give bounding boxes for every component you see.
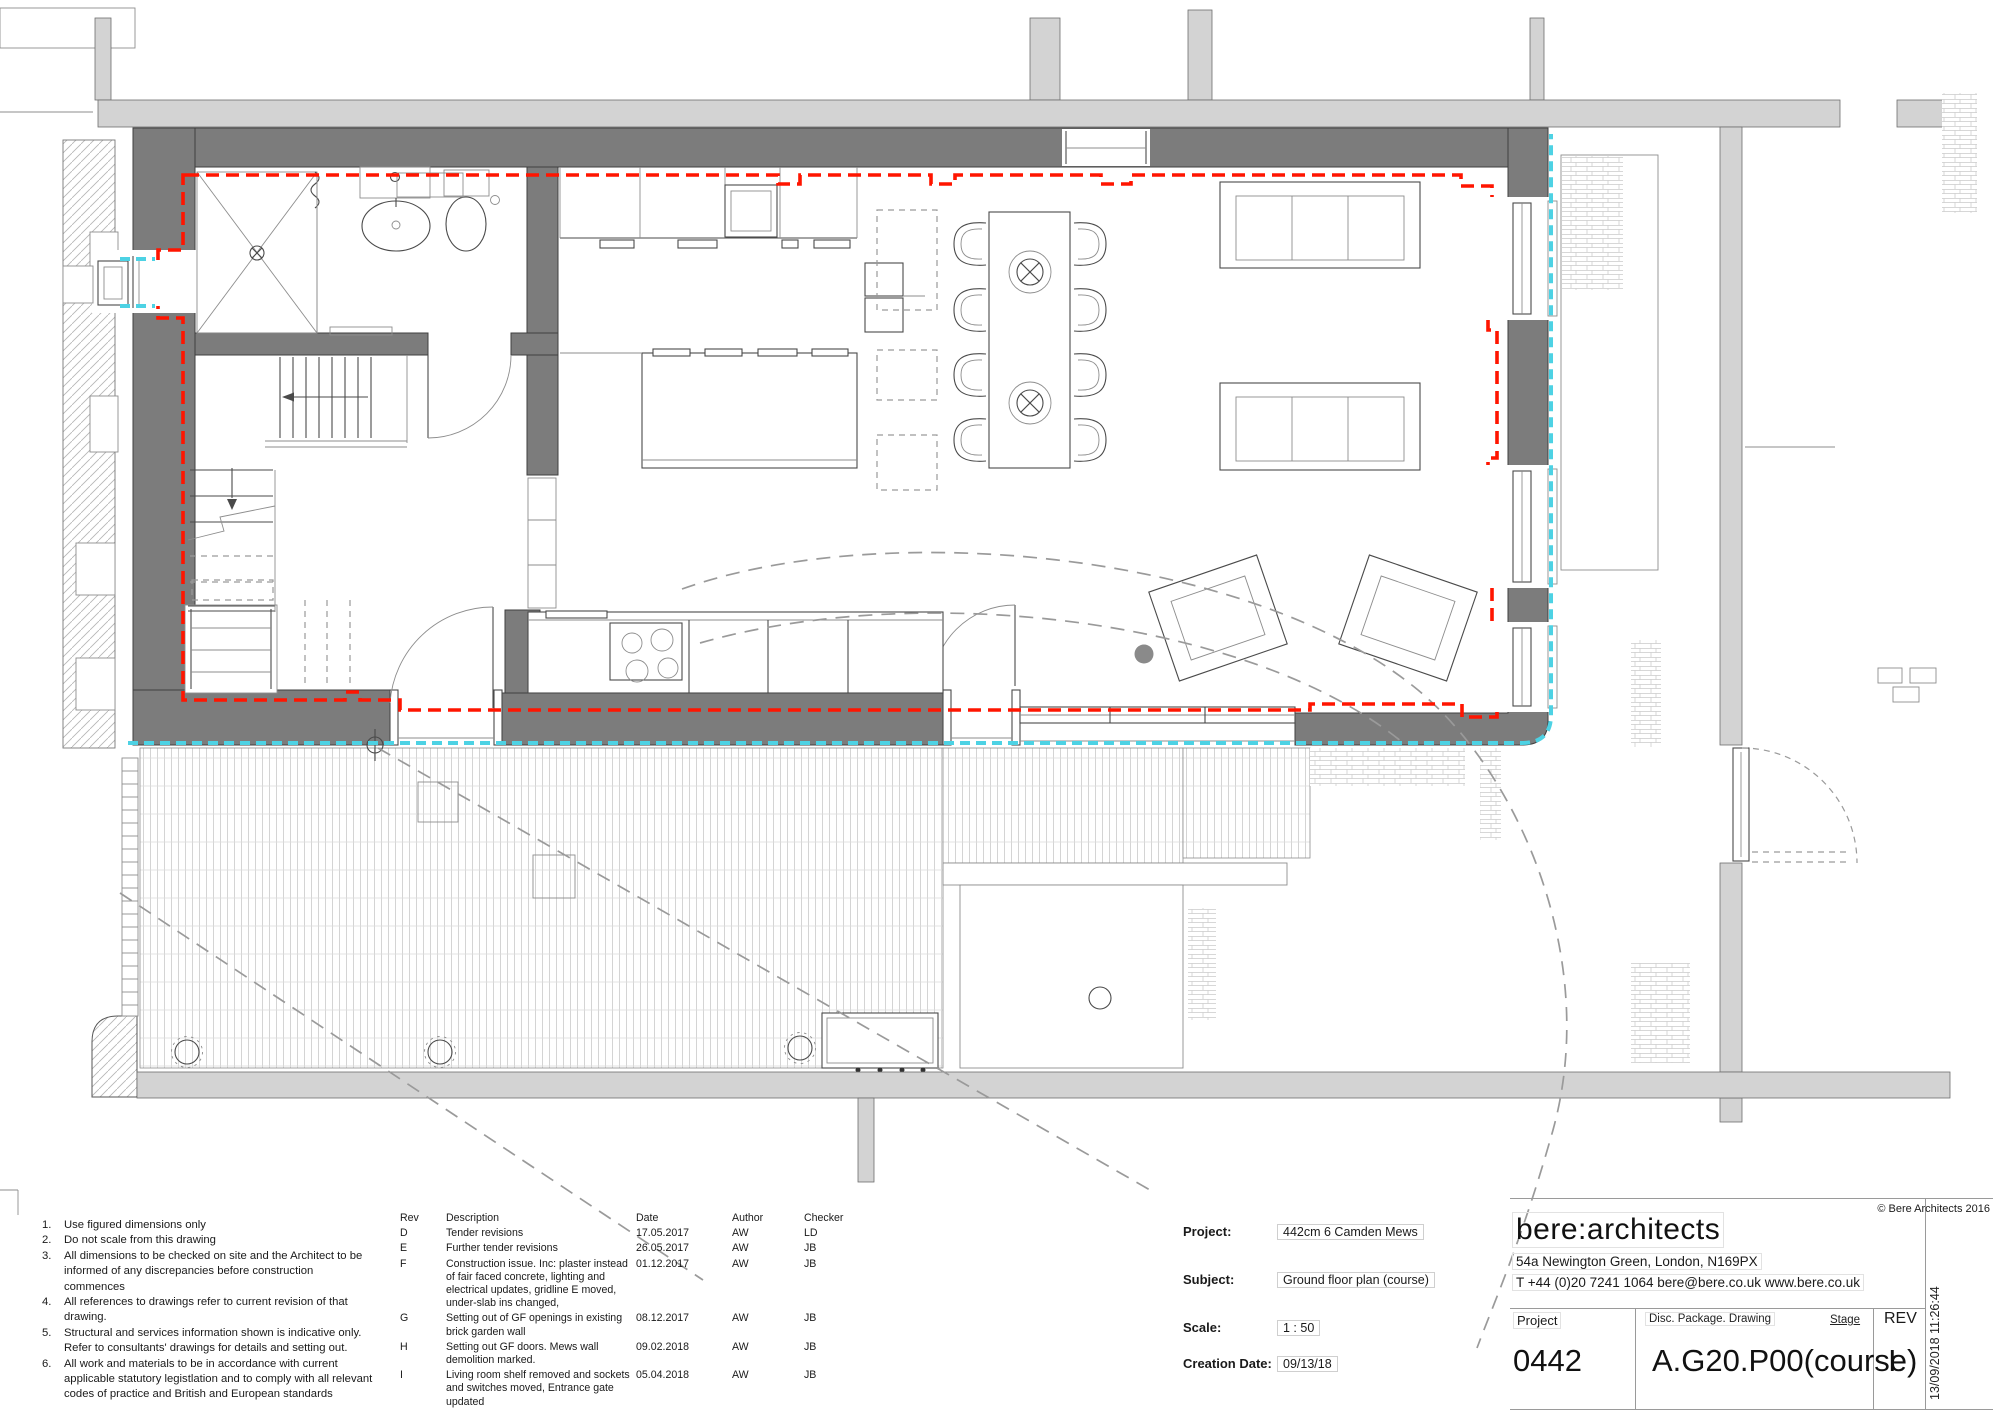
revision-rev: I: [400, 1369, 446, 1411]
kitchen-trolley: [865, 263, 925, 332]
scale-label: Scale:: [1183, 1320, 1221, 1335]
note-item: 2.Do not scale from this drawing: [42, 1233, 382, 1248]
note-item: 5.Structural and services information sh…: [42, 1326, 382, 1357]
side-table: [1135, 645, 1154, 664]
revision-checker: JB: [804, 1242, 864, 1257]
window-south-stair: [185, 605, 277, 693]
copyright: © Bere Architects 2016: [1700, 1203, 1990, 1215]
garden-bed: [1561, 155, 1936, 702]
rooflight-dashed-outlines: [877, 210, 937, 490]
drawing-number-label: Disc. Package. Drawing: [1645, 1312, 1775, 1326]
subject-label: Subject:: [1183, 1272, 1234, 1287]
note-item: 4.All references to drawings refer to cu…: [42, 1295, 382, 1326]
staircase: [188, 355, 407, 612]
revision-description: Setting out GF doors. Mews wall demoliti…: [446, 1341, 636, 1369]
garden-wall: [1720, 127, 1742, 1122]
revision-date: 17.05.2017: [636, 1227, 732, 1242]
revision-rev: E: [400, 1242, 446, 1257]
revision-checker: JB: [804, 1312, 864, 1340]
window-north-highlevel: [1062, 129, 1150, 166]
revision-checker: JB: [804, 1341, 864, 1369]
revision-rev: H: [400, 1341, 446, 1369]
creation-date-value: 09/13/18: [1277, 1356, 1338, 1372]
subject-value: Ground floor plan (course): [1277, 1272, 1435, 1288]
toilet-roll-holder: [491, 196, 500, 205]
rev-value: I: [1888, 1343, 1897, 1379]
armchair-right: [1339, 555, 1477, 681]
firm-address: 54a Newington Green, London, N169PX: [1512, 1253, 1762, 1270]
garden-gate: [1733, 748, 1857, 863]
revision-table: RevDescriptionDateAuthorCheckerDTender r…: [400, 1212, 864, 1411]
firm-contact: T +44 (0)20 7241 1064 bere@bere.co.uk ww…: [1512, 1274, 1864, 1291]
decking: [140, 748, 1465, 1068]
sofa-south: [1220, 383, 1420, 470]
revision-author: AW: [732, 1369, 804, 1411]
revision-date: 09.02.2018: [636, 1341, 732, 1369]
creation-date-label: Creation Date:: [1183, 1356, 1272, 1371]
revision-header: Author: [732, 1212, 804, 1227]
revision-description: Tender revisions: [446, 1227, 636, 1242]
armchair-left: [1149, 555, 1287, 681]
revision-date: 26.05.2017: [636, 1242, 732, 1257]
toilet: [444, 170, 489, 251]
revision-author: AW: [732, 1312, 804, 1340]
project-number-label: Project: [1513, 1312, 1561, 1329]
drawing-sheet: 1.Use figured dimensions only2.Do not sc…: [0, 0, 2000, 1415]
sofa-north: [1220, 182, 1420, 268]
revision-header: Description: [446, 1212, 636, 1227]
revision-description: Construction issue. Inc: plaster instead…: [446, 1258, 636, 1313]
revision-author: AW: [732, 1242, 804, 1257]
drawing-number: A.G20.P00(course): [1652, 1343, 1917, 1379]
revision-header: Date: [636, 1212, 732, 1227]
revision-date: 08.12.2017: [636, 1312, 732, 1340]
revision-author: AW: [732, 1227, 804, 1242]
revision-rev: F: [400, 1258, 446, 1313]
firm-name: bere:architects: [1512, 1212, 1724, 1248]
revision-description: Setting out of GF openings in existing b…: [446, 1312, 636, 1340]
revision-header: Rev: [400, 1212, 446, 1227]
rev-label: REV: [1884, 1310, 1917, 1328]
patio-door-west: [390, 607, 502, 745]
note-item: 6.All work and materials to be in accord…: [42, 1357, 382, 1403]
revision-checker: LD: [804, 1227, 864, 1242]
general-notes: 1.Use figured dimensions only2.Do not sc…: [42, 1218, 382, 1403]
scale-value: 1 : 50: [1277, 1320, 1320, 1336]
revision-rev: D: [400, 1227, 446, 1242]
shower: [197, 172, 319, 333]
project-number: 0442: [1513, 1343, 1582, 1379]
kitchen-counter-south: [528, 611, 943, 693]
note-item: 3.All dimensions to be checked on site a…: [42, 1249, 382, 1295]
dining-table: [989, 212, 1070, 468]
revision-date: 05.04.2018: [636, 1369, 732, 1411]
kitchen-island: [560, 349, 857, 468]
revision-header: Checker: [804, 1212, 864, 1227]
patio-door-centre: [932, 605, 1020, 745]
revision-rev: G: [400, 1312, 446, 1340]
plot-timestamp: 13/09/2018 11:26:44: [1928, 1198, 1942, 1400]
revision-checker: JB: [804, 1258, 864, 1313]
project-label: Project:: [1183, 1224, 1231, 1239]
revision-description: Living room shelf removed and sockets an…: [446, 1369, 636, 1411]
revision-checker: JB: [804, 1369, 864, 1411]
project-value: 442cm 6 Camden Mews: [1277, 1224, 1424, 1240]
revision-description: Further tender revisions: [446, 1242, 636, 1257]
bathroom-door: [428, 355, 511, 438]
revision-date: 01.12.2017: [636, 1258, 732, 1313]
revision-author: AW: [732, 1258, 804, 1313]
stage-label: Stage: [1830, 1314, 1860, 1326]
vanity-basin: [360, 167, 430, 251]
mews-wall: [137, 1072, 1950, 1182]
sliding-glazed-doors: [1020, 707, 1295, 741]
note-item: 1.Use figured dimensions only: [42, 1218, 382, 1233]
revision-author: AW: [732, 1341, 804, 1369]
party-wall-band: [95, 10, 1947, 127]
